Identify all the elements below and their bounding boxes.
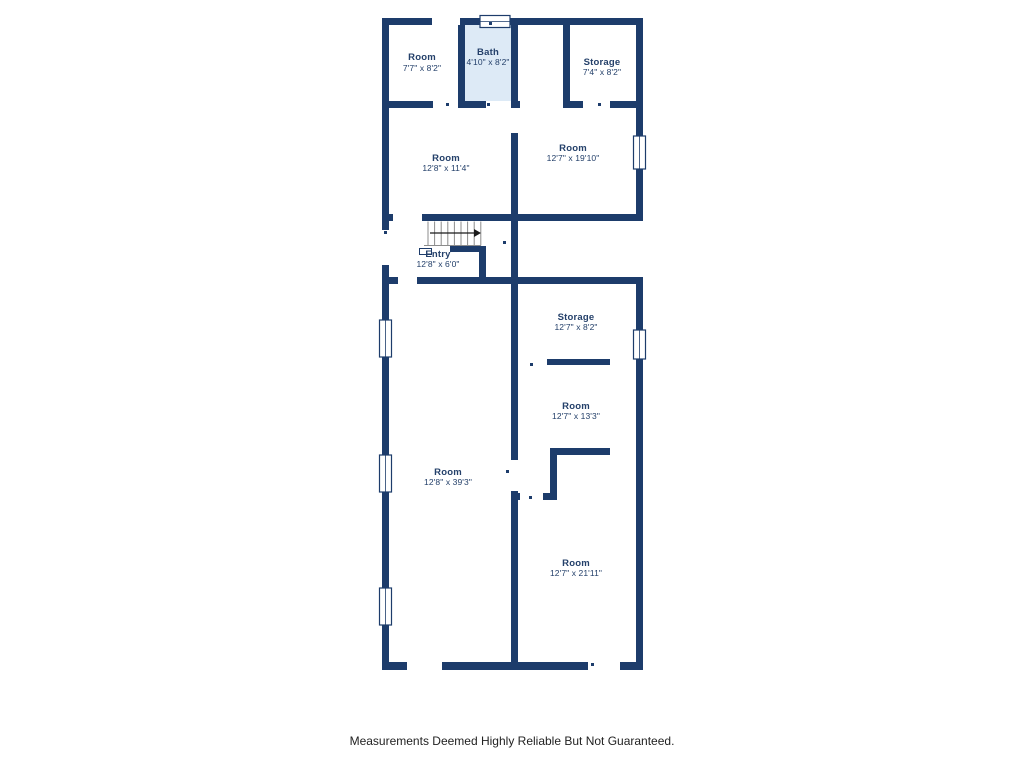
room-dimensions: 12'8" x 39'3"	[424, 477, 472, 487]
room-dimensions: 12'7" x 21'11"	[550, 568, 602, 578]
wall-tick	[591, 663, 594, 666]
door-opening	[393, 214, 422, 221]
wall-segment	[458, 18, 465, 108]
room-label-room-top-left: Room 7'7" x 8'2"	[403, 52, 441, 73]
room-name: Room	[408, 52, 436, 63]
wall-tick	[598, 103, 601, 106]
wall-segment	[550, 448, 610, 455]
room-label-room-mid-right: Room 12'7" x 19'10"	[547, 143, 600, 163]
door-opening	[583, 101, 610, 108]
wall-tick	[424, 22, 427, 25]
door-opening	[432, 18, 460, 25]
wall-segment	[511, 133, 518, 221]
room-dimensions: 12'7" x 13'3"	[552, 411, 600, 421]
wall-tick	[573, 360, 576, 363]
window-symbol	[380, 320, 392, 357]
window-symbol	[380, 588, 392, 625]
wall-tick	[530, 363, 533, 366]
wall-tick	[600, 22, 603, 25]
window-symbol	[480, 16, 510, 28]
wall-tick	[446, 663, 449, 666]
wall-tick	[538, 216, 541, 219]
window-symbol	[634, 330, 646, 359]
wall-tick	[384, 231, 387, 234]
room-dimensions: 12'8" x 6'0"	[416, 259, 459, 269]
wall-tick	[446, 103, 449, 106]
wall-tick	[506, 470, 509, 473]
wall-tick	[592, 451, 595, 454]
wall-segment	[382, 265, 389, 284]
door-opening	[610, 359, 636, 365]
room-label-room-mid-left: Room 12'8" x 11'4"	[422, 153, 469, 173]
room-dimensions: 7'4" x 8'2"	[583, 67, 621, 77]
wall-segment	[511, 221, 518, 277]
wall-segment	[479, 246, 486, 284]
wall-tick	[503, 241, 506, 244]
room-dimensions: 12'7" x 19'10"	[547, 153, 600, 163]
wall-tick	[386, 60, 389, 63]
room-label-room-big-left: Room 12'8" x 39'3"	[424, 467, 472, 487]
room-label-storage-lower: Storage 12'7" x 8'2"	[554, 312, 597, 332]
wall-tick	[487, 103, 490, 106]
wall-segment	[563, 18, 570, 108]
room-dimensions: 12'7" x 8'2"	[554, 322, 597, 332]
wall-segment	[511, 18, 518, 108]
wall-tick	[637, 190, 640, 193]
wall-tick	[637, 578, 640, 581]
room-label-room-bottom-right: Room 12'7" x 21'11"	[550, 558, 602, 578]
walls	[382, 18, 643, 670]
wall-tick	[489, 22, 492, 25]
wall-tick	[610, 279, 613, 282]
door-opening	[433, 101, 458, 108]
wall-segment	[543, 493, 557, 500]
wall-segment	[550, 448, 557, 500]
floor-plan: Room 7'7" x 8'2" Bath 4'10" x 8'2" Stora…	[0, 0, 1024, 768]
room-label-storage-top: Storage 7'4" x 8'2"	[583, 57, 621, 77]
door-opening	[407, 662, 442, 670]
room-dimensions: 4'10" x 8'2"	[466, 57, 509, 67]
window-symbol	[634, 136, 646, 169]
wall-segment	[382, 18, 389, 221]
wall-segment	[389, 277, 398, 284]
stair-arrow-head	[474, 229, 481, 237]
wall-segment	[511, 493, 520, 500]
wall-segment	[382, 221, 389, 230]
wall-tick	[512, 391, 515, 394]
wall-tick	[537, 22, 540, 25]
disclaimer-text: Measurements Deemed Highly Reliable But …	[0, 734, 1024, 748]
room-dimensions: 12'8" x 11'4"	[422, 163, 469, 173]
window-symbol	[380, 455, 392, 492]
room-label-room-right-mid: Room 12'7" x 13'3"	[552, 401, 600, 421]
room-dimensions: 7'7" x 8'2"	[403, 63, 441, 73]
door-opening	[510, 460, 519, 491]
wall-segment	[417, 277, 643, 284]
wall-tick	[444, 278, 447, 281]
wall-tick	[443, 216, 446, 219]
wall-tick	[529, 496, 532, 499]
wall-tick	[386, 157, 389, 160]
